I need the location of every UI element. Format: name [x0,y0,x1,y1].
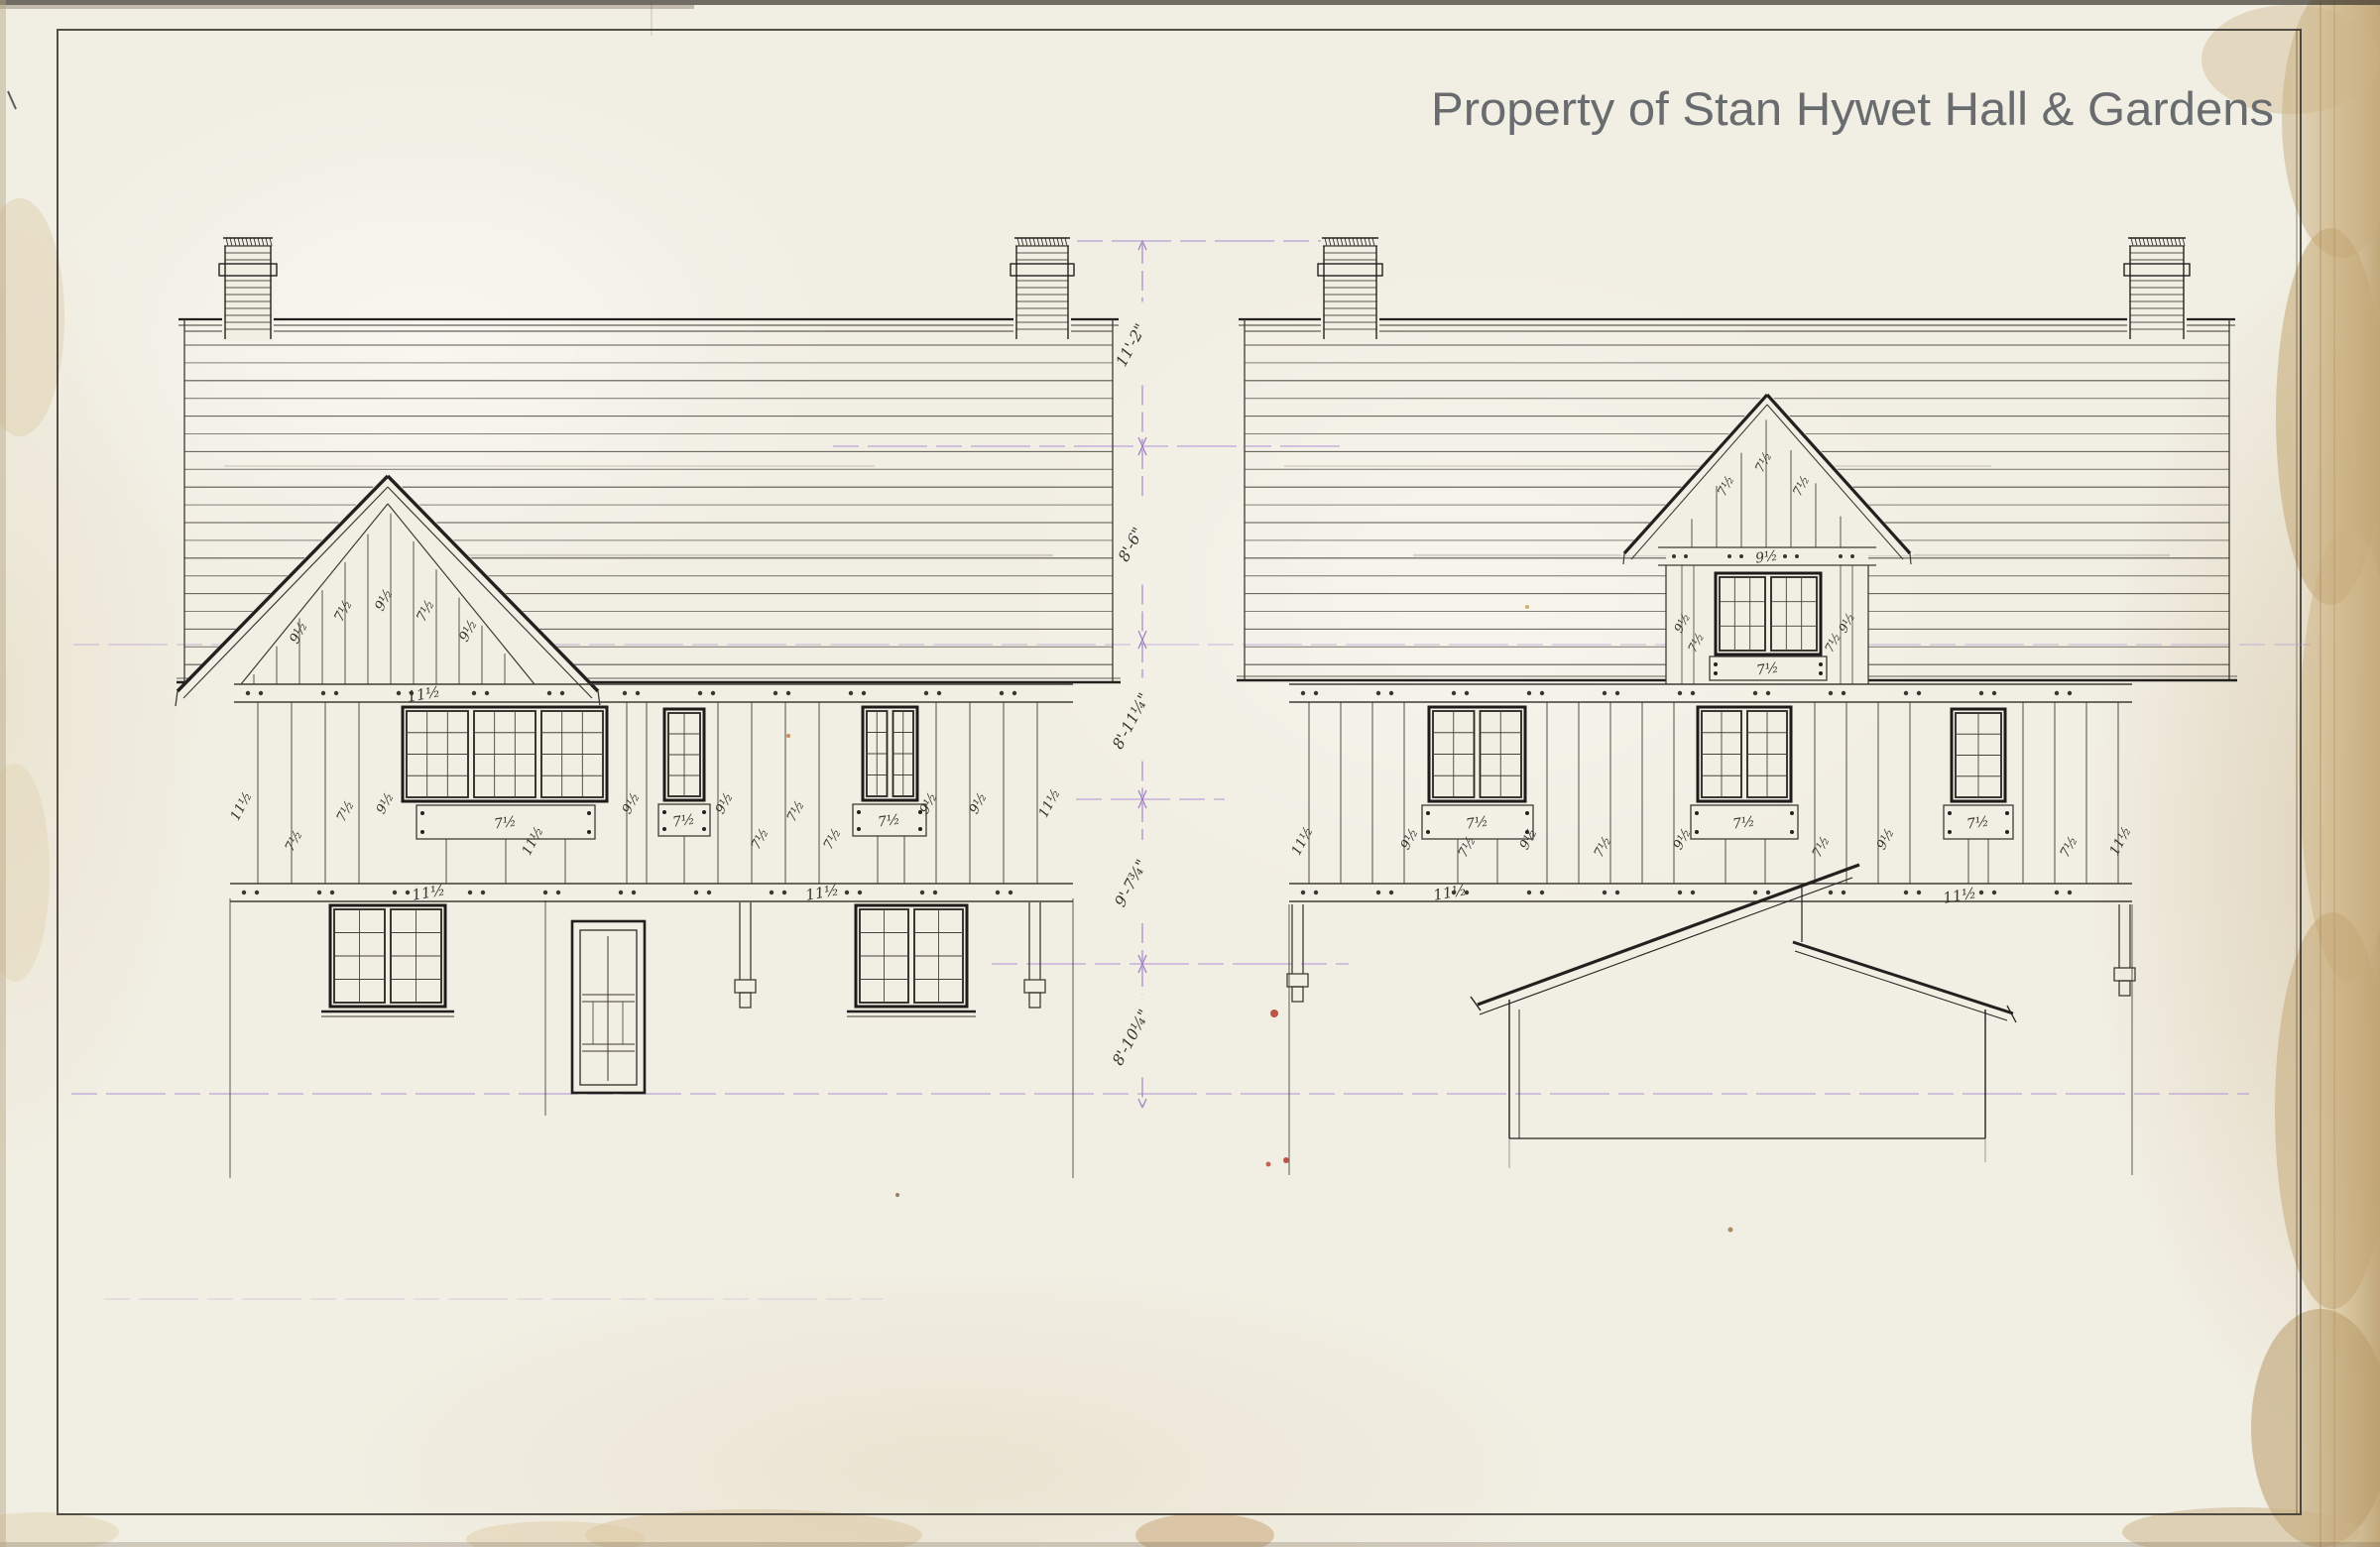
svg-text:7½: 7½ [671,812,695,831]
svg-text:7½: 7½ [333,798,357,825]
svg-text:7½: 7½ [2057,834,2081,861]
left-elevation: 9½7½9½7½9½11½11½11½7½7½7½11½7½7½9½11½9½9… [173,234,1121,1178]
blueprint-svg: 9½7½9½7½9½11½11½11½7½7½7½11½7½7½9½11½9½9… [0,0,2380,1547]
svg-text:7½: 7½ [1465,814,1488,833]
svg-text:9½: 9½ [712,790,736,817]
svg-text:7½: 7½ [1809,834,1833,861]
svg-text:9½: 9½ [619,790,643,817]
shed-leanto [1471,865,2016,1168]
svg-text:7½: 7½ [1455,834,1479,861]
svg-text:9½: 9½ [373,790,397,817]
svg-text:9'-7¾": 9'-7¾" [1112,857,1151,910]
svg-text:7½: 7½ [877,812,900,831]
svg-text:9½: 9½ [1397,826,1421,853]
svg-text:7½: 7½ [1965,814,1989,833]
svg-text:11½: 11½ [1035,786,1063,820]
svg-text:11'-2": 11'-2" [1113,321,1150,370]
svg-text:7½: 7½ [1591,834,1614,861]
svg-text:11½: 11½ [1942,884,1977,907]
svg-text:7½: 7½ [783,798,807,825]
svg-text:7½: 7½ [282,828,305,855]
svg-text:9½: 9½ [1516,826,1540,853]
svg-text:7½: 7½ [1755,660,1779,679]
watermark-text: Property of Stan Hywet Hall & Gardens [1431,82,2274,135]
svg-text:8'-10¼": 8'-10¼" [1109,1007,1153,1069]
drawing-sheet: 9½7½9½7½9½11½11½11½7½7½7½11½7½7½9½11½9½9… [0,0,2380,1547]
svg-text:11½: 11½ [227,789,255,823]
svg-text:7½: 7½ [1731,814,1755,833]
svg-text:9½: 9½ [1754,548,1778,567]
svg-text:7½: 7½ [820,826,844,853]
svg-text:11½: 11½ [519,824,546,858]
drawing-content: 9½7½9½7½9½11½11½11½7½7½7½11½7½7½9½11½9½9… [0,0,2380,1547]
svg-text:9½: 9½ [1873,826,1897,853]
svg-text:8'-11¼": 8'-11¼" [1109,690,1153,753]
dimension-chain: 11'-2"8'-6"8'-11¼"9'-7¾"8'-10¼" [1109,241,1153,1108]
svg-text:11½: 11½ [2106,824,2134,858]
right-elevation: 7½7½7½9½7½9½7½7½9½11½11½7½7½7½11½9½7½9½7… [1237,234,2237,1175]
svg-text:11½: 11½ [1288,824,1316,858]
svg-text:7½: 7½ [493,814,517,833]
svg-text:8'-6": 8'-6" [1115,525,1147,565]
